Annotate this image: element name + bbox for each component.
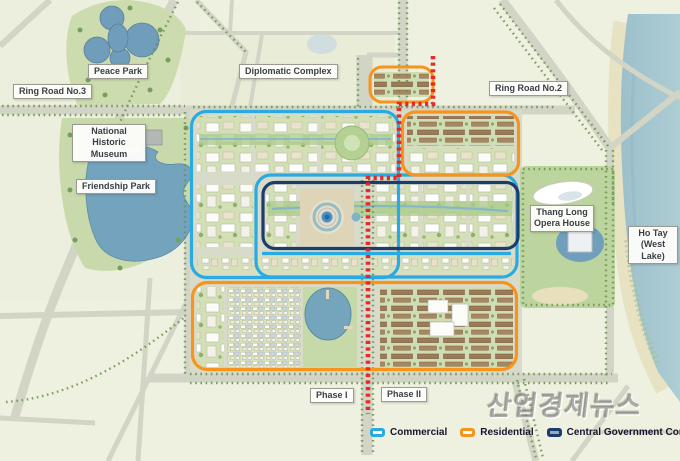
label-ring-road-3: Ring Road No.3 <box>13 84 92 99</box>
masterplan-map: Peace Park Ring Road No.3 Diplomatic Com… <box>0 0 680 461</box>
label-ring-road-2: Ring Road No.2 <box>489 81 568 96</box>
label-diplomatic-complex: Diplomatic Complex <box>239 64 338 79</box>
central-plaza <box>300 189 361 245</box>
central-government-swatch-icon <box>547 428 562 437</box>
label-national-historic-museum: National Historic Museum <box>72 124 146 162</box>
legend-item-commercial: Commercial <box>370 427 447 438</box>
label-phase-1: Phase I <box>310 388 354 403</box>
label-ho-tay-west-lake: Ho Tay (West Lake) <box>628 226 678 264</box>
commercial-swatch-icon <box>370 428 385 437</box>
watermark: 산업경제뉴스 <box>485 384 645 423</box>
legend: Commercial Residential Central Governmen… <box>370 424 680 440</box>
legend-label-commercial: Commercial <box>390 427 447 438</box>
label-thang-long-opera-house: Thang Long Opera House <box>530 205 594 232</box>
label-peace-park: Peace Park <box>88 64 148 79</box>
opera-house-area <box>520 166 615 308</box>
diplomatic-pond <box>307 34 337 54</box>
legend-item-central-government-complex: Central Government Complex <box>547 427 680 438</box>
legend-label-residential: Residential <box>480 427 533 438</box>
label-friendship-park: Friendship Park <box>76 179 156 194</box>
legend-label-central-government: Central Government Complex <box>567 427 680 438</box>
residential-swatch-icon <box>460 428 475 437</box>
label-phase-2: Phase II <box>381 387 427 402</box>
legend-item-residential: Residential <box>460 427 533 438</box>
